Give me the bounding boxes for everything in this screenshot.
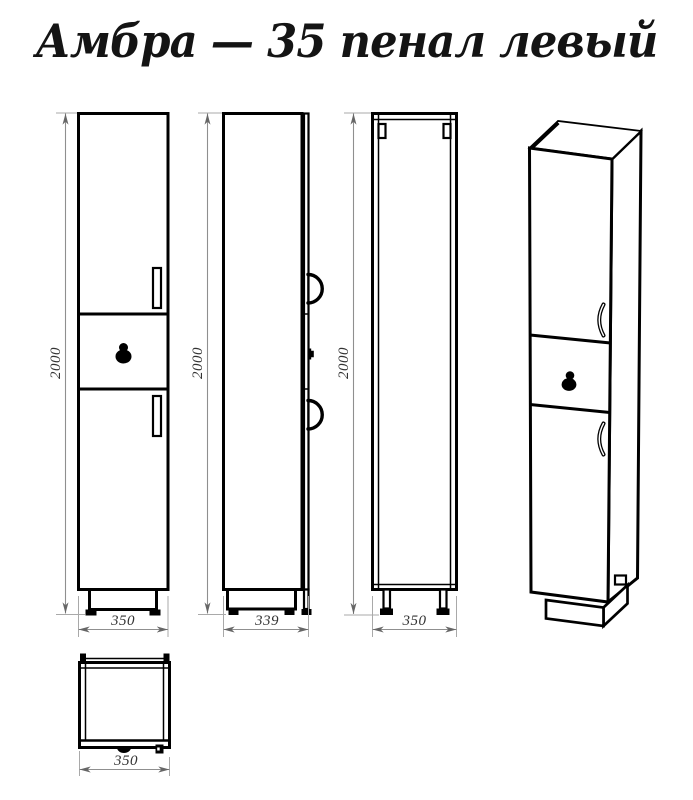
- front-right-foot: [150, 610, 161, 616]
- top-view: 350: [80, 654, 170, 777]
- top-cabinet-outline: [80, 663, 170, 748]
- top-width-dimension: 350: [80, 751, 170, 776]
- front-upper-door-handle: [153, 268, 161, 308]
- side-view: 2000 339: [190, 113, 322, 637]
- side-height-dimension: 2000: [190, 113, 226, 615]
- side-plinth: [228, 590, 296, 610]
- back-left-foot: [380, 609, 393, 616]
- back-right-leg: [440, 590, 447, 609]
- side-front-foot: [302, 609, 312, 615]
- front-plinth: [90, 590, 157, 610]
- iso-plinth-front: [546, 600, 604, 626]
- perspective-view: [530, 121, 642, 626]
- dimension-label: 2000: [190, 347, 206, 379]
- side-back-foot: [229, 609, 239, 615]
- front-lower-door-handle: [153, 396, 161, 436]
- front-left-foot: [86, 610, 97, 616]
- side-lower-handle-profile: [308, 401, 322, 430]
- side-cabinet-body: [224, 114, 303, 590]
- dimension-label: 2000: [336, 347, 352, 379]
- front-view: 2000 350: [48, 113, 168, 637]
- side-door-edge: [304, 114, 309, 590]
- iso-back-foot: [615, 576, 626, 585]
- back-right-foot: [437, 609, 450, 616]
- blueprint-page: Амбра — 35 пенал левый: [0, 0, 693, 800]
- dimension-label: 339: [254, 613, 279, 629]
- back-left-hanger-bracket: [379, 124, 386, 138]
- back-left-leg: [384, 590, 391, 609]
- top-handle-block: [156, 745, 164, 754]
- back-right-hanger-bracket: [444, 124, 451, 138]
- back-view: 2000 350: [336, 113, 457, 637]
- side-upper-handle-profile: [308, 275, 322, 304]
- dimension-label: 2000: [48, 347, 64, 379]
- side-door-bottom-edge: [304, 590, 309, 610]
- dimension-label: 350: [110, 613, 135, 629]
- side-knob-profile: [308, 349, 314, 360]
- technical-drawing: 2000 350: [0, 0, 693, 800]
- side-mid-foot: [285, 609, 295, 615]
- dimension-label: 350: [402, 613, 427, 629]
- back-cabinet-body: [373, 114, 457, 590]
- dimension-label: 350: [113, 753, 138, 769]
